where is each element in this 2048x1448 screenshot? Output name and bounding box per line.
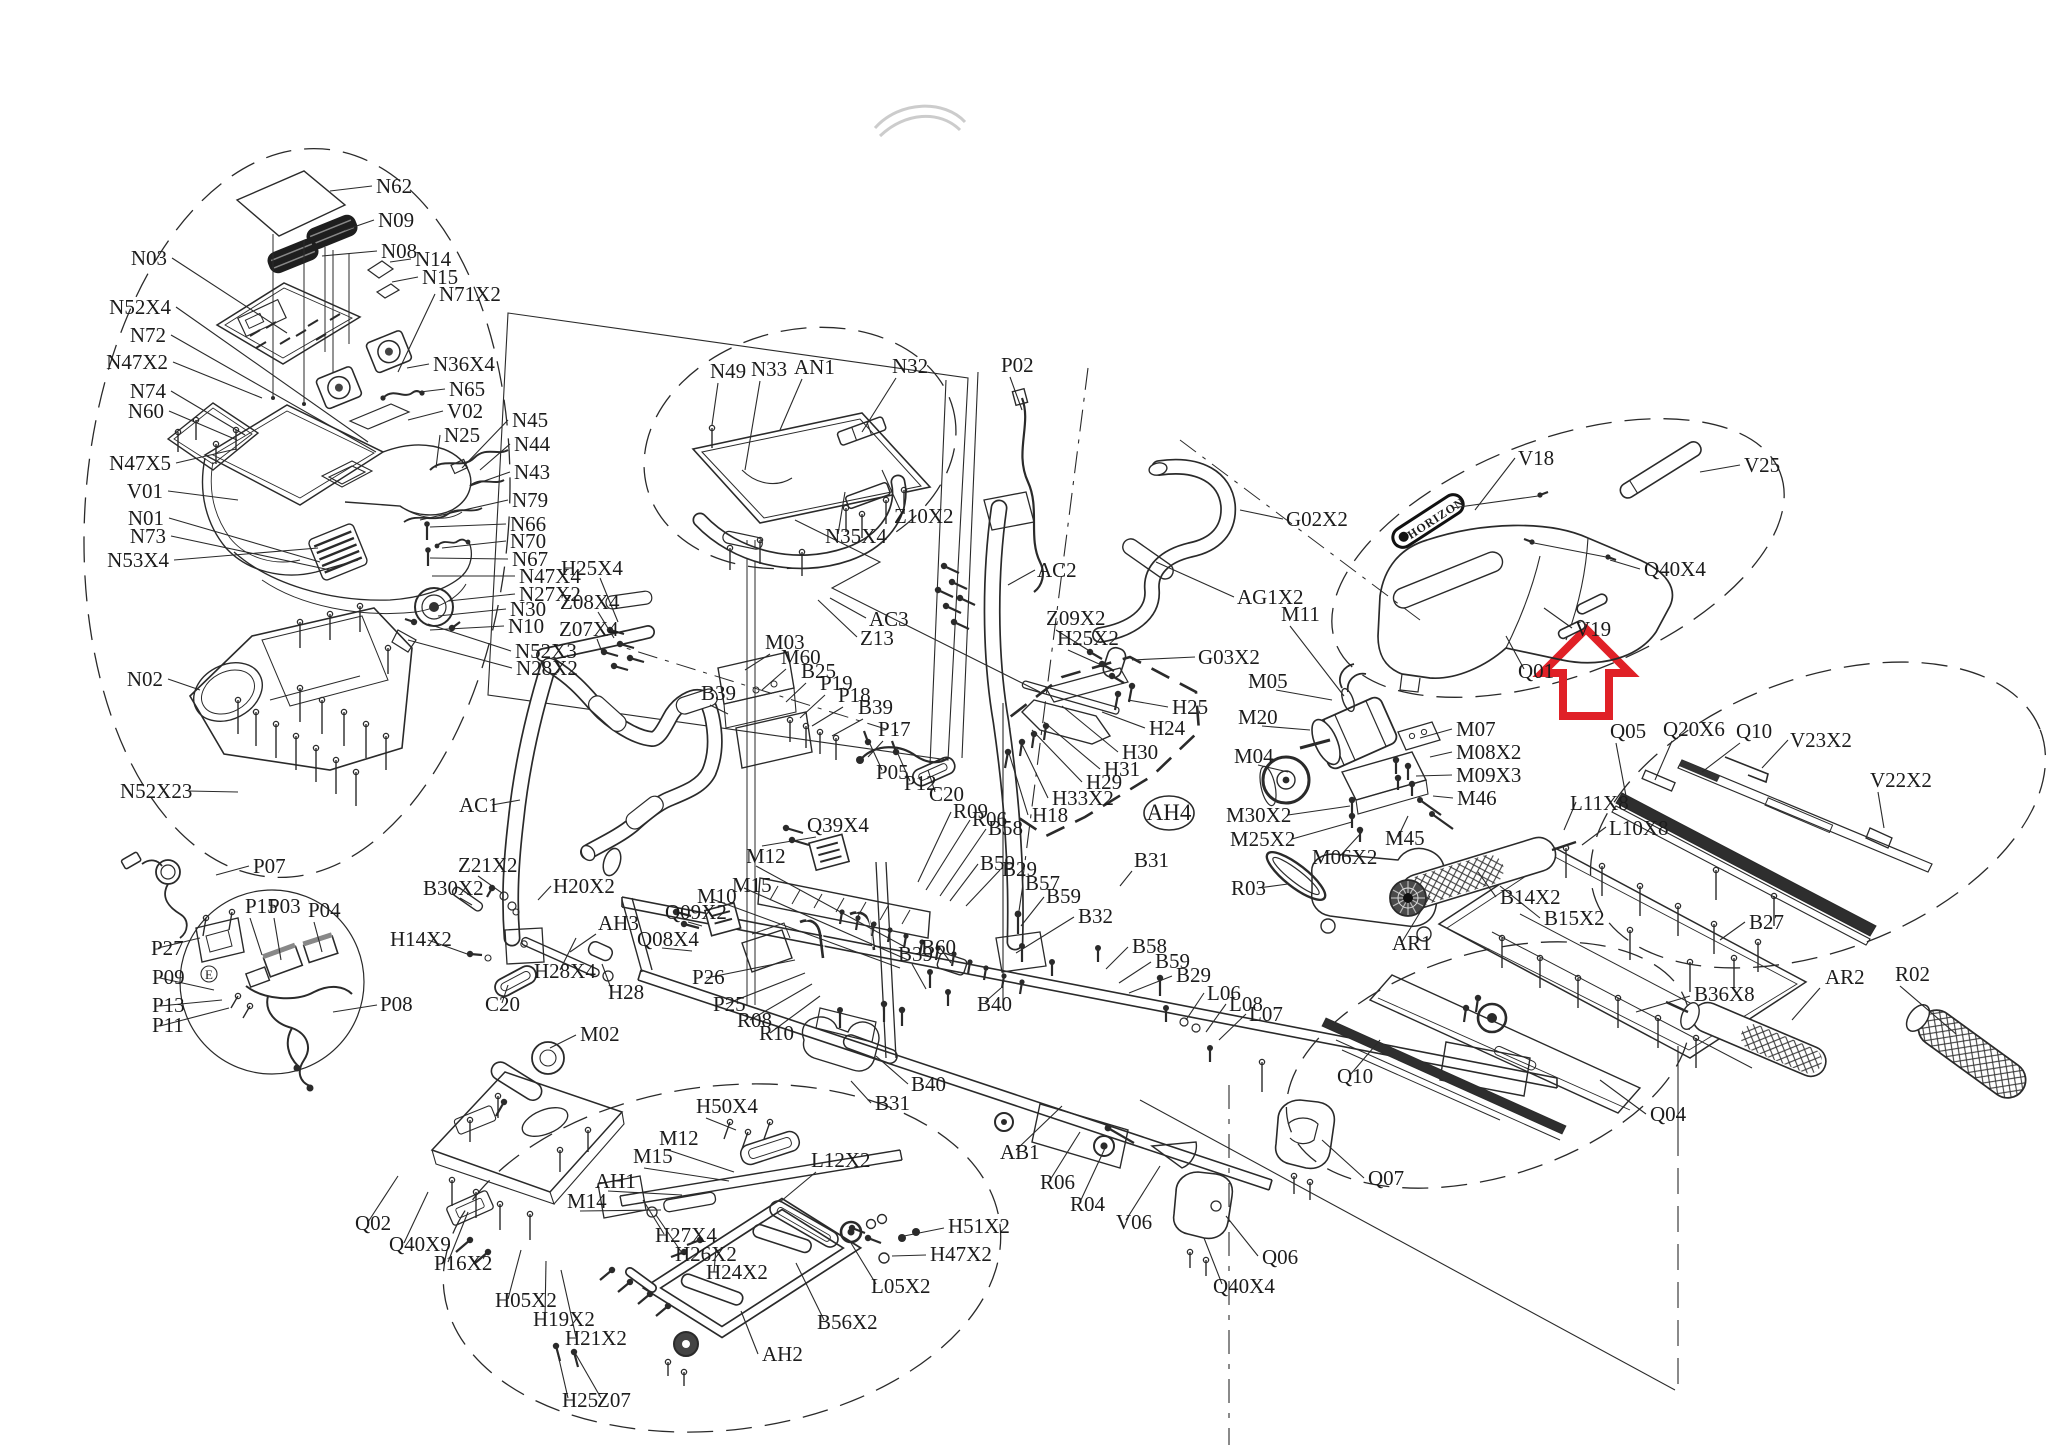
- svg-text:M15: M15: [633, 1144, 673, 1168]
- svg-text:V25: V25: [1744, 453, 1780, 477]
- svg-text:B29: B29: [1176, 963, 1211, 987]
- svg-text:Q01: Q01: [1518, 659, 1554, 683]
- svg-text:L07: L07: [1249, 1002, 1283, 1026]
- svg-text:N73: N73: [130, 524, 166, 548]
- svg-text:N72: N72: [130, 323, 166, 347]
- svg-text:B40: B40: [911, 1072, 946, 1096]
- svg-text:B27: B27: [1749, 910, 1784, 934]
- svg-text:Q09X2: Q09X2: [665, 900, 727, 924]
- svg-text:H51X2: H51X2: [948, 1214, 1010, 1238]
- svg-text:M12: M12: [746, 844, 786, 868]
- svg-text:N47X5: N47X5: [109, 451, 171, 475]
- svg-text:AH3: AH3: [598, 911, 639, 935]
- svg-text:N52X4: N52X4: [109, 295, 171, 319]
- svg-text:N71X2: N71X2: [439, 282, 501, 306]
- svg-text:V19: V19: [1575, 617, 1611, 641]
- svg-text:N35X4: N35X4: [825, 524, 887, 548]
- svg-text:B31: B31: [1134, 848, 1169, 872]
- svg-text:N02: N02: [127, 667, 163, 691]
- svg-text:V06: V06: [1116, 1210, 1152, 1234]
- svg-text:P27: P27: [151, 936, 184, 960]
- svg-text:R10: R10: [759, 1021, 794, 1045]
- svg-text:H24X2: H24X2: [706, 1260, 768, 1284]
- svg-text:N25: N25: [444, 423, 480, 447]
- svg-text:M05: M05: [1248, 669, 1288, 693]
- svg-text:AN1: AN1: [794, 355, 835, 379]
- svg-text:B59: B59: [1046, 884, 1081, 908]
- svg-text:N52X23: N52X23: [120, 779, 192, 803]
- svg-text:V23X2: V23X2: [1790, 728, 1852, 752]
- svg-text:B56X2: B56X2: [817, 1310, 878, 1334]
- svg-text:R04: R04: [1070, 1192, 1106, 1216]
- svg-text:Q04: Q04: [1650, 1102, 1687, 1126]
- svg-text:Z08X4: Z08X4: [560, 590, 620, 614]
- svg-text:M20: M20: [1238, 705, 1278, 729]
- svg-text:Q06: Q06: [1262, 1245, 1298, 1269]
- svg-text:G02X2: G02X2: [1286, 507, 1348, 531]
- svg-text:Q20X6: Q20X6: [1663, 717, 1725, 741]
- svg-text:B31: B31: [875, 1091, 910, 1115]
- svg-text:L11X8: L11X8: [1570, 791, 1629, 815]
- svg-text:Q10: Q10: [1736, 719, 1772, 743]
- svg-text:Q08X4: Q08X4: [637, 927, 699, 951]
- svg-text:R06: R06: [1040, 1170, 1075, 1194]
- svg-text:P07: P07: [253, 854, 286, 878]
- svg-text:L05X2: L05X2: [871, 1274, 931, 1298]
- svg-text:B58: B58: [988, 816, 1023, 840]
- svg-text:N47X2: N47X2: [106, 350, 168, 374]
- svg-text:H14X2: H14X2: [390, 927, 452, 951]
- svg-text:M30X2: M30X2: [1226, 803, 1291, 827]
- svg-text:AH2: AH2: [762, 1342, 803, 1366]
- svg-text:C20: C20: [485, 992, 520, 1016]
- svg-text:N79: N79: [512, 488, 548, 512]
- svg-text:N33: N33: [751, 357, 787, 381]
- svg-text:Q07: Q07: [1368, 1166, 1404, 1190]
- svg-text:N08: N08: [381, 239, 417, 263]
- svg-text:V18: V18: [1518, 446, 1554, 470]
- svg-text:B32: B32: [1078, 904, 1113, 928]
- svg-text:N03: N03: [131, 246, 167, 270]
- svg-text:N49: N49: [710, 359, 746, 383]
- svg-text:Q05: Q05: [1610, 719, 1646, 743]
- svg-text:P16X2: P16X2: [434, 1251, 492, 1275]
- svg-text:H50X4: H50X4: [696, 1094, 758, 1118]
- svg-text:P08: P08: [380, 992, 413, 1016]
- svg-text:Z10X2: Z10X2: [894, 504, 954, 528]
- svg-text:M15: M15: [732, 873, 772, 897]
- svg-text:N28X2: N28X2: [516, 656, 578, 680]
- svg-text:H25X2: H25X2: [1057, 626, 1119, 650]
- svg-text:Z07X4: Z07X4: [559, 617, 619, 641]
- svg-text:Q40X4: Q40X4: [1213, 1274, 1275, 1298]
- svg-text:B30X2: B30X2: [423, 876, 484, 900]
- svg-text:AB1: AB1: [1000, 1140, 1040, 1164]
- svg-text:V22X2: V22X2: [1870, 768, 1932, 792]
- svg-text:N60: N60: [128, 399, 164, 423]
- svg-text:Q40X4: Q40X4: [1644, 557, 1706, 581]
- svg-text:M46: M46: [1457, 786, 1497, 810]
- svg-text:N45: N45: [512, 408, 548, 432]
- svg-text:N09: N09: [378, 208, 414, 232]
- svg-text:N10: N10: [508, 614, 544, 638]
- svg-text:N62: N62: [376, 174, 412, 198]
- svg-text:M11: M11: [1281, 602, 1320, 626]
- svg-text:H24: H24: [1149, 716, 1186, 740]
- svg-text:L12X2: L12X2: [811, 1148, 871, 1172]
- svg-text:B39: B39: [898, 942, 933, 966]
- svg-text:R03: R03: [1231, 876, 1266, 900]
- svg-text:M02: M02: [580, 1022, 620, 1046]
- svg-text:M14: M14: [567, 1189, 607, 1213]
- svg-text:Z21X2: Z21X2: [458, 853, 518, 877]
- svg-text:P17: P17: [878, 717, 911, 741]
- svg-text:N53X4: N53X4: [107, 548, 169, 572]
- svg-text:P11: P11: [152, 1013, 184, 1037]
- svg-text:V02: V02: [447, 399, 483, 423]
- svg-text:Q10: Q10: [1337, 1064, 1373, 1088]
- svg-text:E: E: [205, 967, 213, 982]
- svg-text:H18: H18: [1032, 803, 1068, 827]
- svg-text:Q39X4: Q39X4: [807, 813, 869, 837]
- svg-text:M09X3: M09X3: [1456, 763, 1521, 787]
- svg-text:N43: N43: [514, 460, 550, 484]
- svg-text:Q02: Q02: [355, 1211, 391, 1235]
- svg-text:AR1: AR1: [1392, 931, 1432, 955]
- svg-text:P26: P26: [692, 965, 725, 989]
- svg-text:AC2: AC2: [1037, 558, 1077, 582]
- svg-text:B40: B40: [977, 992, 1012, 1016]
- svg-text:V01: V01: [127, 479, 163, 503]
- svg-text:P04: P04: [308, 898, 341, 922]
- svg-text:AH4: AH4: [1147, 800, 1192, 825]
- svg-text:M45: M45: [1385, 826, 1425, 850]
- svg-text:M25X2: M25X2: [1230, 827, 1295, 851]
- svg-text:H28X4: H28X4: [534, 959, 596, 983]
- svg-text:B36X8: B36X8: [1694, 982, 1755, 1006]
- svg-text:H21X2: H21X2: [565, 1326, 627, 1350]
- svg-text:H28: H28: [608, 980, 644, 1004]
- svg-text:AR2: AR2: [1825, 965, 1865, 989]
- svg-text:R02: R02: [1895, 962, 1930, 986]
- svg-text:H47X2: H47X2: [930, 1242, 992, 1266]
- svg-text:M07: M07: [1456, 717, 1496, 741]
- svg-text:B15X2: B15X2: [1544, 906, 1605, 930]
- svg-text:B39: B39: [701, 681, 736, 705]
- svg-text:H25X4: H25X4: [561, 556, 623, 580]
- svg-text:P03: P03: [268, 894, 301, 918]
- svg-text:M06X2: M06X2: [1312, 845, 1377, 869]
- svg-text:L10X8: L10X8: [1609, 816, 1669, 840]
- svg-text:M04: M04: [1234, 744, 1274, 768]
- svg-text:G03X2: G03X2: [1198, 645, 1260, 669]
- svg-text:N32: N32: [892, 354, 928, 378]
- svg-text:H20X2: H20X2: [553, 874, 615, 898]
- svg-text:Z13: Z13: [860, 626, 894, 650]
- svg-text:B39: B39: [858, 695, 893, 719]
- svg-text:AC1: AC1: [459, 793, 499, 817]
- svg-text:P02: P02: [1001, 353, 1034, 377]
- svg-text:P09: P09: [152, 965, 185, 989]
- svg-text:N44: N44: [514, 432, 551, 456]
- svg-text:Z07: Z07: [597, 1388, 631, 1412]
- svg-text:N36X4: N36X4: [433, 352, 495, 376]
- svg-text:N65: N65: [449, 377, 485, 401]
- svg-text:H25: H25: [562, 1388, 598, 1412]
- svg-text:M08X2: M08X2: [1456, 740, 1521, 764]
